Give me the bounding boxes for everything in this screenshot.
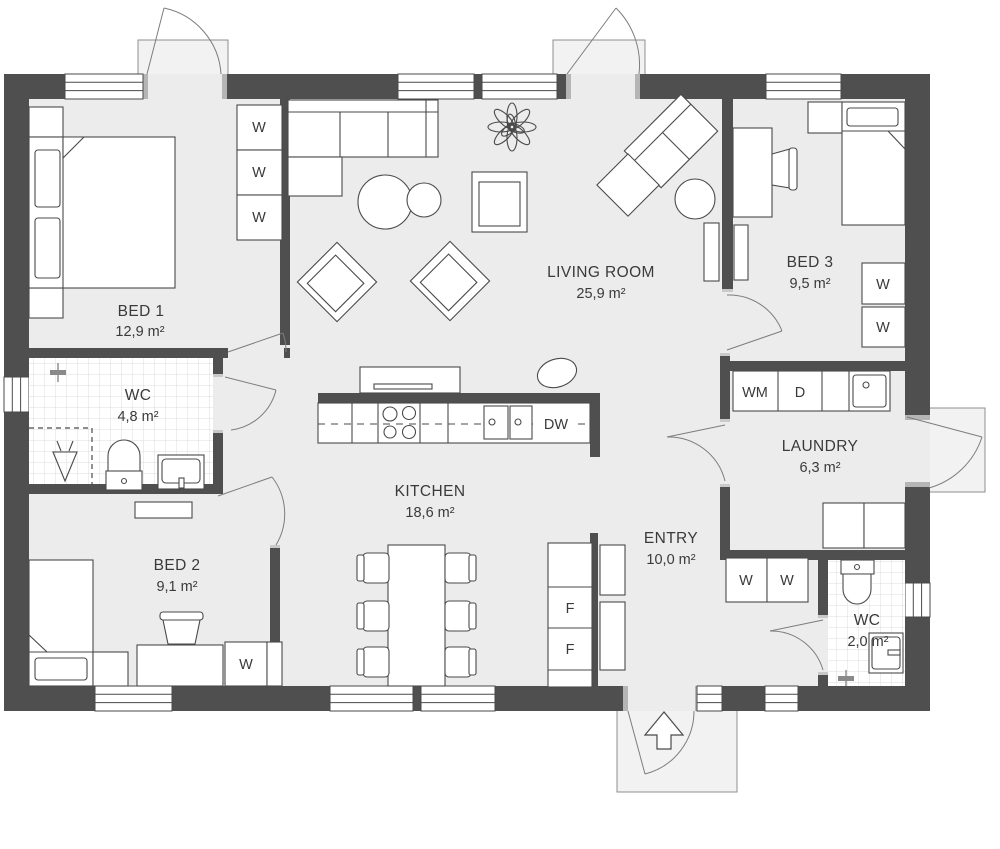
door-jamb <box>905 482 930 487</box>
chair-back <box>789 148 797 190</box>
room-wc1: WC 4,8 m² <box>29 358 213 490</box>
room-label-living: LIVING ROOM <box>547 264 655 281</box>
door-jamb <box>143 74 148 99</box>
coffee-table-icon <box>407 183 441 217</box>
wall-laundry-north <box>730 361 905 371</box>
room-area-bed1: 12,9 m² <box>115 324 164 340</box>
window-bed2 <box>95 686 172 711</box>
chair-back <box>160 612 203 620</box>
window-kitchen-1 <box>330 686 413 711</box>
media-bench-icon <box>360 367 460 393</box>
window-wc2 <box>905 583 930 617</box>
kitchen-sink-icon <box>484 406 532 439</box>
window-living-2 <box>482 74 557 99</box>
room-area-wc2: 2,0 m² <box>847 634 888 650</box>
shoe-cabinet <box>600 545 625 595</box>
room-area-living: 25,9 m² <box>576 286 625 302</box>
room-label-laundry: LAUNDRY <box>782 438 859 455</box>
dining-table-icon <box>388 545 445 686</box>
window-bed1 <box>65 74 143 99</box>
dining-chairs-left <box>357 553 389 677</box>
laundry-sink-icon <box>853 375 886 407</box>
wardrobe-label: W <box>739 573 753 589</box>
toilet-icon <box>106 440 142 490</box>
wardrobe-entry: W W <box>726 558 808 602</box>
washing-machine-label: WM <box>742 385 768 401</box>
wardrobe-label: W <box>239 657 253 673</box>
window-bed3 <box>766 74 841 99</box>
wardrobe-bed2: W <box>225 642 282 686</box>
wardrobe-label: W <box>876 320 890 336</box>
dining-chairs-right <box>445 553 476 677</box>
door-opening-top-left <box>143 74 227 99</box>
wardrobe-label: W <box>252 165 266 181</box>
pillow <box>847 108 898 126</box>
desk <box>733 128 772 217</box>
floor-plan-svg: WC 4,8 m² WC 2,0 m² <box>0 0 1000 849</box>
freezer-label: F <box>566 601 575 617</box>
door-jamb <box>222 74 227 99</box>
wall-entry-laundry-lower <box>720 484 730 560</box>
window-entry-2 <box>765 686 798 711</box>
room-label-bed1: BED 1 <box>118 303 165 320</box>
nightstand <box>93 652 128 686</box>
room-label-kitchen: KITCHEN <box>395 483 466 500</box>
room-label-wc2: WC <box>854 612 881 629</box>
fridge-freezer-column: F F <box>548 543 592 687</box>
double-bed-icon <box>29 137 175 288</box>
wall-wc2-west-upper <box>818 560 828 618</box>
wardrobe-label: W <box>252 210 266 226</box>
kitchen-counter: DW <box>318 403 590 443</box>
shoe-cabinet <box>600 602 625 670</box>
chair-icon <box>163 620 200 644</box>
shelf <box>734 225 748 280</box>
pillow <box>35 150 60 207</box>
door-jamb <box>635 74 640 99</box>
freezer-label: F <box>566 642 575 658</box>
window-living-1 <box>398 74 474 99</box>
room-area-wc1: 4,8 m² <box>117 409 158 425</box>
door-jamb <box>566 74 571 99</box>
window-kitchen-2 <box>421 686 495 711</box>
wall-entry-laundry-upper <box>720 353 730 422</box>
wall-kitchen-return <box>590 403 600 457</box>
wall-wc-east-lower <box>213 430 223 494</box>
single-bed-icon <box>842 102 905 225</box>
single-bed-icon <box>29 560 93 686</box>
radiator <box>704 223 719 281</box>
room-wc2: WC 2,0 m² <box>828 560 905 686</box>
wall-bed1-door-post <box>284 348 290 358</box>
coffee-table-icon <box>358 175 412 229</box>
dryer-label: D <box>795 385 805 401</box>
nightstand <box>29 288 63 318</box>
wardrobe-label: W <box>876 277 890 293</box>
door-opening-entry <box>628 686 695 711</box>
dining-set <box>357 545 476 686</box>
room-label-entry: ENTRY <box>644 530 698 547</box>
room-label-bed2: BED 2 <box>154 557 201 574</box>
floor-plan: WC 4,8 m² WC 2,0 m² <box>0 0 1000 849</box>
door-opening-laundry <box>905 415 930 487</box>
armchair-icon <box>472 172 527 232</box>
pillow <box>35 218 60 278</box>
wardrobe-label: W <box>780 573 794 589</box>
laundry-counter: WM D <box>733 371 890 411</box>
room-area-bed3: 9,5 m² <box>789 276 830 292</box>
sink-icon <box>158 455 204 489</box>
pillow <box>35 658 87 680</box>
room-label-bed3: BED 3 <box>787 254 834 271</box>
door-jamb <box>623 686 628 711</box>
room-area-kitchen: 18,6 m² <box>405 505 454 521</box>
desk <box>137 645 223 686</box>
window-wc1 <box>4 377 29 412</box>
porch-top-middle <box>553 40 645 76</box>
room-area-entry: 10,0 m² <box>646 552 695 568</box>
room-area-bed2: 9,1 m² <box>156 579 197 595</box>
room-area-laundry: 6,3 m² <box>799 460 840 476</box>
wardrobe-bed1: W W W <box>237 105 282 240</box>
dishwasher-label: DW <box>544 417 568 433</box>
room-label-wc1: WC <box>125 387 152 404</box>
nightstand <box>808 102 842 133</box>
nightstand <box>29 107 63 137</box>
wall-bed1-wc <box>29 348 228 358</box>
wall-kitchen-living <box>318 393 600 403</box>
window-entry-1 <box>697 686 722 711</box>
porch-entry <box>617 709 737 792</box>
wardrobe-label: W <box>252 120 266 136</box>
laundry-cabinet <box>823 503 905 548</box>
chair-icon <box>772 149 790 188</box>
toilet-icon <box>841 560 874 604</box>
dresser <box>135 502 192 518</box>
pouf-icon <box>675 179 715 219</box>
door-opening-top-middle <box>566 74 640 99</box>
wall-living-bed3 <box>722 99 733 292</box>
